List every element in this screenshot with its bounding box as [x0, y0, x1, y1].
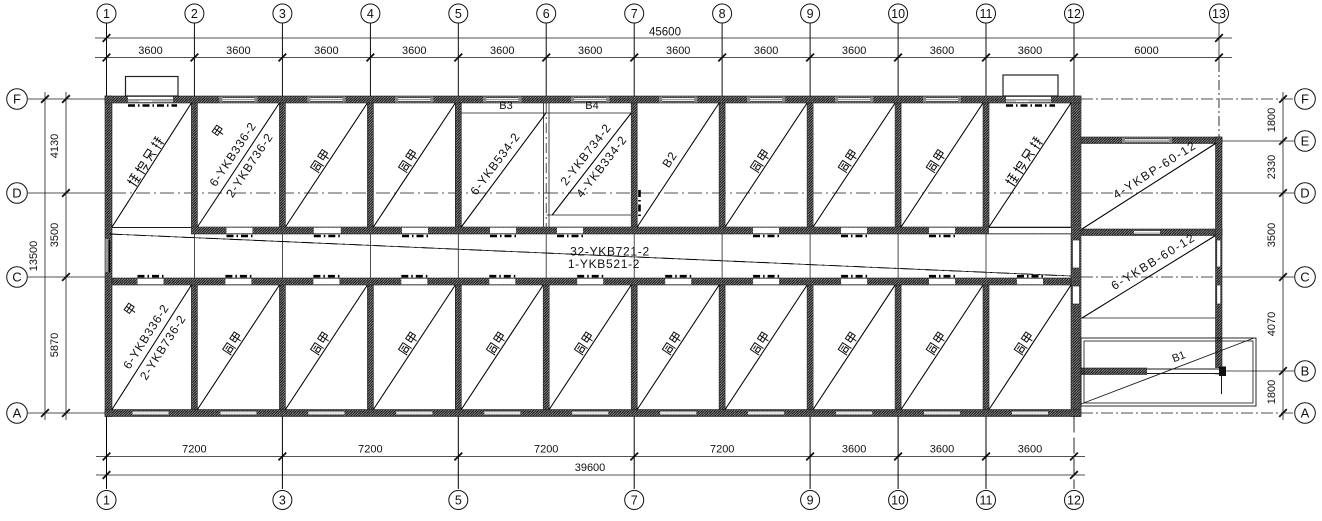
svg-text:11: 11: [980, 7, 993, 21]
svg-text:A: A: [13, 406, 22, 421]
svg-text:B3: B3: [499, 100, 512, 112]
svg-text:9: 9: [807, 494, 814, 508]
svg-text:3500: 3500: [49, 223, 61, 247]
svg-text:3: 3: [279, 494, 286, 508]
svg-text:7: 7: [631, 7, 638, 21]
svg-text:3600: 3600: [1018, 444, 1042, 456]
svg-text:3600: 3600: [754, 45, 778, 57]
svg-text:B4: B4: [585, 100, 598, 112]
svg-text:6: 6: [543, 7, 550, 21]
svg-text:D: D: [12, 186, 21, 201]
svg-text:39600: 39600: [575, 462, 606, 474]
svg-text:12: 12: [1067, 7, 1081, 21]
svg-text:3600: 3600: [490, 45, 514, 57]
svg-text:7: 7: [631, 494, 638, 508]
svg-text:3600: 3600: [1018, 45, 1042, 57]
svg-text:B: B: [1301, 364, 1310, 379]
svg-text:C: C: [1300, 270, 1309, 285]
svg-text:3: 3: [279, 7, 286, 21]
svg-text:13: 13: [1212, 7, 1226, 21]
svg-text:3600: 3600: [930, 45, 954, 57]
svg-text:3600: 3600: [842, 45, 866, 57]
svg-text:7200: 7200: [358, 444, 382, 456]
svg-text:7200: 7200: [534, 444, 558, 456]
svg-text:4: 4: [367, 7, 374, 21]
svg-text:F: F: [1301, 92, 1309, 107]
svg-text:10: 10: [891, 7, 905, 21]
svg-text:7200: 7200: [182, 444, 206, 456]
svg-text:12: 12: [1067, 494, 1081, 508]
svg-text:45600: 45600: [649, 27, 681, 39]
svg-text:E: E: [1301, 134, 1310, 149]
svg-text:5870: 5870: [49, 333, 61, 357]
svg-text:3600: 3600: [314, 45, 338, 57]
svg-text:6000: 6000: [1134, 45, 1158, 57]
svg-text:9: 9: [807, 7, 814, 21]
svg-text:2: 2: [191, 7, 198, 21]
svg-text:3600: 3600: [578, 45, 602, 57]
svg-text:1: 1: [103, 7, 110, 21]
svg-text:3600: 3600: [666, 45, 690, 57]
svg-text:8: 8: [719, 7, 726, 21]
svg-text:1-YKB521-2: 1-YKB521-2: [568, 257, 640, 271]
svg-text:11: 11: [980, 494, 993, 508]
svg-text:10: 10: [891, 494, 905, 508]
svg-text:7200: 7200: [710, 444, 734, 456]
svg-text:F: F: [13, 92, 21, 107]
svg-text:1: 1: [103, 494, 110, 508]
svg-text:2330: 2330: [1266, 155, 1278, 179]
svg-text:C: C: [12, 270, 21, 285]
svg-text:1800: 1800: [1266, 380, 1278, 404]
svg-text:3600: 3600: [930, 444, 954, 456]
svg-text:3600: 3600: [402, 45, 426, 57]
svg-text:D: D: [1300, 186, 1309, 201]
svg-text:13500: 13500: [28, 241, 40, 272]
svg-text:3600: 3600: [226, 45, 250, 57]
svg-text:3500: 3500: [1266, 223, 1278, 247]
svg-text:4070: 4070: [1266, 312, 1278, 336]
svg-text:5: 5: [455, 7, 462, 21]
svg-text:4130: 4130: [49, 134, 61, 158]
svg-text:1800: 1800: [1266, 108, 1278, 132]
svg-text:A: A: [1301, 406, 1310, 421]
svg-text:5: 5: [455, 494, 462, 508]
svg-text:3600: 3600: [842, 444, 866, 456]
svg-text:3600: 3600: [138, 45, 162, 57]
